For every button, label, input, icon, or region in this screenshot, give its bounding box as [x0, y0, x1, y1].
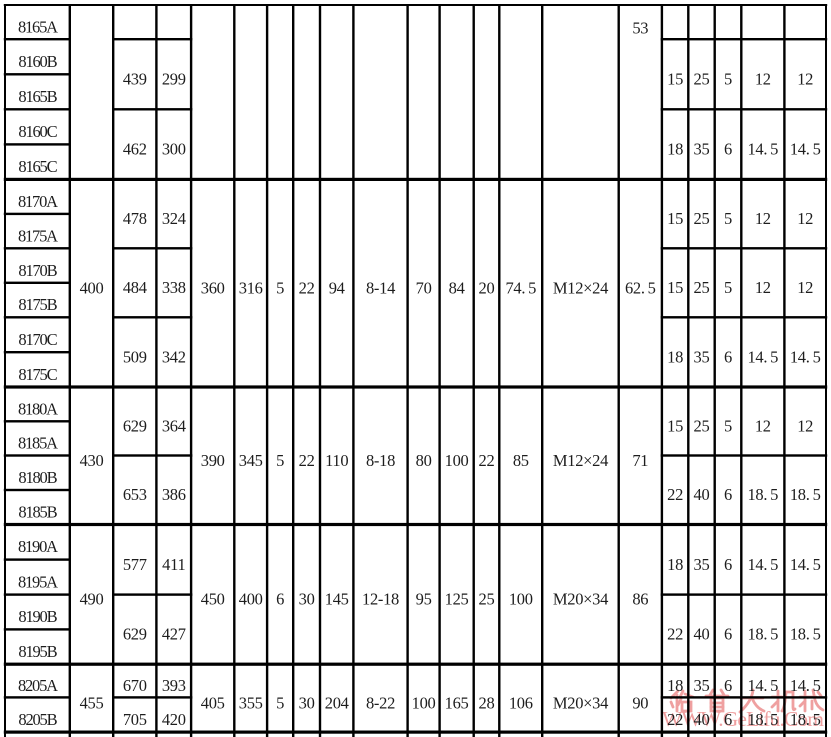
svg-text:400: 400: [239, 590, 263, 609]
svg-text:8-22: 8-22: [366, 693, 395, 712]
svg-text:12: 12: [755, 209, 771, 228]
svg-text:14. 5: 14. 5: [747, 676, 778, 695]
svg-text:8180B: 8180B: [18, 468, 57, 487]
svg-text:14. 5: 14. 5: [790, 140, 821, 159]
svg-text:8195A: 8195A: [18, 572, 58, 591]
svg-text:8175C: 8175C: [18, 365, 57, 384]
svg-text:670: 670: [123, 676, 147, 695]
svg-text:653: 653: [123, 485, 147, 504]
svg-text:5: 5: [276, 278, 284, 297]
svg-text:18. 5: 18. 5: [790, 710, 821, 729]
svg-text:8165B: 8165B: [18, 87, 57, 106]
svg-text:20: 20: [479, 278, 495, 297]
svg-text:18. 5: 18. 5: [747, 710, 778, 729]
svg-text:M12×24: M12×24: [553, 278, 608, 297]
svg-text:18: 18: [667, 347, 683, 366]
svg-text:18. 5: 18. 5: [790, 625, 821, 644]
svg-text:484: 484: [123, 278, 147, 297]
svg-text:427: 427: [162, 625, 186, 644]
svg-text:5: 5: [724, 70, 732, 89]
svg-text:12: 12: [755, 278, 771, 297]
svg-text:165: 165: [445, 693, 469, 712]
svg-text:411: 411: [162, 555, 185, 574]
svg-text:22: 22: [479, 451, 495, 470]
svg-text:85: 85: [513, 451, 529, 470]
svg-text:204: 204: [325, 693, 349, 712]
svg-text:316: 316: [239, 278, 263, 297]
svg-text:25: 25: [694, 278, 710, 297]
svg-text:5: 5: [724, 416, 732, 435]
svg-text:100: 100: [412, 693, 436, 712]
svg-text:324: 324: [162, 209, 186, 228]
svg-text:110: 110: [325, 451, 348, 470]
svg-text:12: 12: [797, 278, 813, 297]
svg-text:80: 80: [416, 451, 432, 470]
svg-text:14. 5: 14. 5: [747, 140, 778, 159]
svg-text:71: 71: [632, 451, 648, 470]
svg-text:30: 30: [299, 590, 315, 609]
svg-text:8205B: 8205B: [18, 710, 57, 729]
svg-text:6: 6: [276, 590, 284, 609]
svg-text:390: 390: [201, 451, 225, 470]
svg-text:5: 5: [724, 278, 732, 297]
svg-text:40: 40: [694, 710, 710, 729]
svg-text:8165C: 8165C: [18, 157, 57, 176]
svg-text:25: 25: [694, 416, 710, 435]
svg-text:35: 35: [694, 140, 710, 159]
svg-text:94: 94: [329, 278, 345, 297]
svg-text:450: 450: [201, 590, 225, 609]
svg-text:8-18: 8-18: [366, 451, 395, 470]
svg-text:14. 5: 14. 5: [790, 676, 821, 695]
svg-text:405: 405: [201, 693, 225, 712]
svg-text:430: 430: [80, 451, 104, 470]
svg-text:6: 6: [724, 710, 732, 729]
svg-text:22: 22: [667, 625, 683, 644]
svg-text:28: 28: [479, 693, 495, 712]
svg-text:25: 25: [694, 70, 710, 89]
svg-text:M20×34: M20×34: [553, 590, 608, 609]
svg-text:14. 5: 14. 5: [790, 555, 821, 574]
svg-text:145: 145: [325, 590, 349, 609]
svg-text:8205A: 8205A: [18, 676, 58, 695]
svg-text:14. 5: 14. 5: [790, 347, 821, 366]
svg-text:342: 342: [162, 347, 186, 366]
svg-text:15: 15: [667, 278, 683, 297]
svg-text:355: 355: [239, 693, 263, 712]
svg-text:6: 6: [724, 625, 732, 644]
svg-text:299: 299: [162, 70, 186, 89]
svg-text:18. 5: 18. 5: [790, 485, 821, 504]
svg-text:400: 400: [80, 278, 104, 297]
svg-text:15: 15: [667, 209, 683, 228]
svg-text:18: 18: [667, 676, 683, 695]
svg-text:386: 386: [162, 485, 186, 504]
svg-text:455: 455: [80, 693, 104, 712]
svg-text:14. 5: 14. 5: [747, 555, 778, 574]
svg-text:439: 439: [123, 70, 147, 89]
svg-text:629: 629: [123, 625, 147, 644]
svg-text:8190B: 8190B: [18, 607, 57, 626]
svg-text:8190A: 8190A: [18, 537, 58, 556]
svg-text:12: 12: [797, 416, 813, 435]
svg-text:35: 35: [694, 555, 710, 574]
svg-text:8185B: 8185B: [18, 503, 57, 522]
svg-text:100: 100: [509, 590, 533, 609]
svg-text:35: 35: [694, 676, 710, 695]
svg-text:8-14: 8-14: [366, 278, 395, 297]
svg-text:18. 5: 18. 5: [747, 625, 778, 644]
svg-text:5: 5: [276, 693, 284, 712]
svg-text:8170B: 8170B: [18, 261, 57, 280]
svg-text:8160B: 8160B: [18, 52, 57, 71]
svg-text:18: 18: [667, 555, 683, 574]
svg-text:62. 5: 62. 5: [625, 278, 656, 297]
svg-text:12: 12: [755, 70, 771, 89]
svg-text:125: 125: [445, 590, 469, 609]
svg-text:364: 364: [162, 416, 186, 435]
svg-text:22: 22: [667, 485, 683, 504]
svg-text:25: 25: [479, 590, 495, 609]
svg-text:12: 12: [797, 209, 813, 228]
svg-text:40: 40: [694, 485, 710, 504]
svg-text:M12×24: M12×24: [553, 451, 608, 470]
svg-text:8185A: 8185A: [18, 434, 58, 453]
svg-text:30: 30: [299, 693, 315, 712]
svg-text:5: 5: [276, 451, 284, 470]
svg-text:22: 22: [299, 451, 315, 470]
svg-text:5: 5: [724, 209, 732, 228]
svg-text:25: 25: [694, 209, 710, 228]
svg-text:12: 12: [755, 416, 771, 435]
svg-text:18. 5: 18. 5: [747, 485, 778, 504]
svg-text:8175A: 8175A: [18, 226, 58, 245]
svg-text:6: 6: [724, 347, 732, 366]
svg-text:8180A: 8180A: [18, 399, 58, 418]
svg-text:100: 100: [445, 451, 469, 470]
svg-text:509: 509: [123, 347, 147, 366]
svg-text:360: 360: [201, 278, 225, 297]
svg-text:705: 705: [123, 710, 147, 729]
svg-text:629: 629: [123, 416, 147, 435]
svg-text:95: 95: [416, 590, 432, 609]
svg-text:6: 6: [724, 485, 732, 504]
svg-text:84: 84: [449, 278, 465, 297]
svg-text:338: 338: [162, 278, 186, 297]
svg-text:22: 22: [667, 710, 683, 729]
svg-text:15: 15: [667, 70, 683, 89]
svg-text:106: 106: [509, 693, 533, 712]
svg-text:8170A: 8170A: [18, 192, 58, 211]
svg-text:490: 490: [80, 590, 104, 609]
svg-text:40: 40: [694, 625, 710, 644]
svg-text:8195B: 8195B: [18, 642, 57, 661]
svg-text:478: 478: [123, 209, 147, 228]
svg-text:577: 577: [123, 555, 147, 574]
svg-text:22: 22: [299, 278, 315, 297]
svg-text:345: 345: [239, 451, 263, 470]
svg-text:300: 300: [162, 140, 186, 159]
svg-text:18: 18: [667, 140, 683, 159]
svg-text:12: 12: [797, 70, 813, 89]
svg-text:74. 5: 74. 5: [505, 278, 536, 297]
svg-text:12-18: 12-18: [362, 590, 399, 609]
svg-text:14. 5: 14. 5: [747, 347, 778, 366]
svg-text:393: 393: [162, 676, 186, 695]
svg-text:462: 462: [123, 140, 147, 159]
svg-text:6: 6: [724, 555, 732, 574]
svg-text:8170C: 8170C: [18, 330, 57, 349]
svg-text:70: 70: [416, 278, 432, 297]
svg-text:86: 86: [632, 590, 648, 609]
svg-text:15: 15: [667, 416, 683, 435]
svg-text:8160C: 8160C: [18, 122, 57, 141]
svg-text:420: 420: [162, 710, 186, 729]
svg-text:6: 6: [724, 140, 732, 159]
svg-text:M20×34: M20×34: [553, 693, 608, 712]
svg-text:8165A: 8165A: [18, 17, 58, 36]
svg-text:53: 53: [632, 19, 648, 38]
svg-text:90: 90: [632, 693, 648, 712]
svg-text:8175B: 8175B: [18, 295, 57, 314]
svg-text:35: 35: [694, 347, 710, 366]
svg-text:6: 6: [724, 676, 732, 695]
